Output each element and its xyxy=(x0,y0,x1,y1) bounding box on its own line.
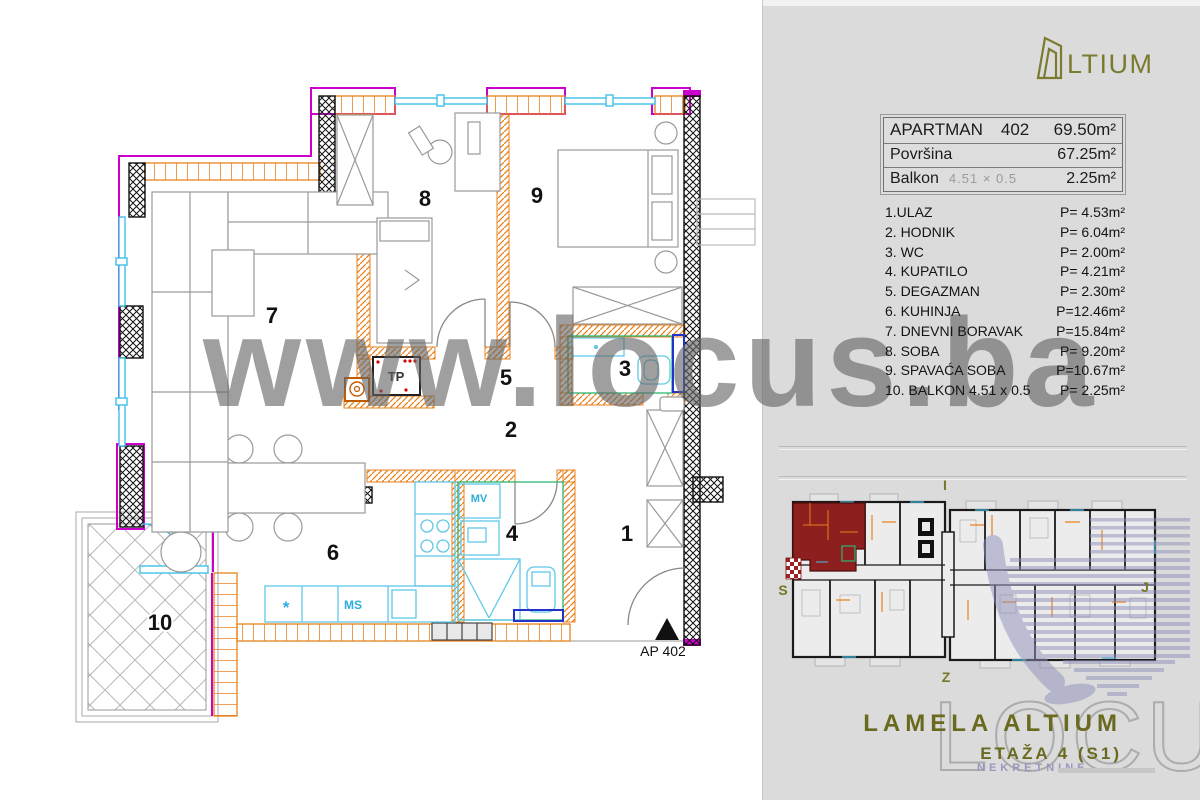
room-label-1: 1 xyxy=(621,521,633,546)
room-list-item: 8. SOBAP= 9.20m² xyxy=(885,342,1125,362)
footer-bar xyxy=(1058,768,1155,773)
room-list-item: 2. HODNIKP= 6.04m² xyxy=(885,223,1125,243)
room-list-item: 1.ULAZP= 4.53m² xyxy=(885,203,1125,223)
mini-highlighted-unit xyxy=(786,503,865,579)
etaza-subtitle: ETAŽA 4 (S1) xyxy=(980,744,1122,764)
compass-left: S xyxy=(778,582,787,598)
apartment-entry-marker: AP 402 xyxy=(640,618,686,659)
room-list-item: 6. KUHINJAP=12.46m² xyxy=(885,302,1125,322)
room-label-2: 2 xyxy=(505,417,517,442)
technical-boxes xyxy=(345,357,420,401)
apartment-total-area: 69.50m² xyxy=(1054,120,1116,140)
balkon-dimensions: 4.51 × 0.5 xyxy=(949,171,1017,186)
room-list-item: 9. SPAVAĆA SOBAP=10.67m² xyxy=(885,361,1125,381)
room-label-6: 6 xyxy=(327,540,339,565)
mini-balcony-checker xyxy=(786,558,801,579)
mv-label: MV xyxy=(471,493,488,505)
apartment-label: APARTMAN xyxy=(890,120,983,140)
povrsina-label: Površina xyxy=(890,146,952,164)
room-list-item: 5. DEGAZMANP= 2.30m² xyxy=(885,282,1125,302)
info-row-povrsina: Površina 67.25m² xyxy=(884,144,1122,168)
info-panel: LTIUM APARTMAN 402 69.50m² Površina 67.2… xyxy=(762,0,1200,800)
ms-label: MS xyxy=(344,598,362,612)
info-row-apartment: APARTMAN 402 69.50m² xyxy=(884,118,1122,144)
tp-label: TP xyxy=(388,369,405,384)
room-list-item: 3. WCP= 2.00m² xyxy=(885,243,1125,263)
room-list-item: 4. KUPATILOP= 4.21m² xyxy=(885,262,1125,282)
apartment-info-table: APARTMAN 402 69.50m² Površina 67.25m² Ba… xyxy=(880,114,1126,195)
lamela-title: LAMELA ALTIUM xyxy=(863,710,1122,738)
compass-top: I xyxy=(943,477,947,493)
altium-door-icon xyxy=(1038,38,1061,78)
room-label-8: 8 xyxy=(419,186,431,211)
star-label: * xyxy=(283,598,290,617)
room-list: 1.ULAZP= 4.53m² 2. HODNIKP= 6.04m² 3. WC… xyxy=(885,203,1125,401)
altium-logo: LTIUM xyxy=(1035,32,1175,82)
room-label-9: 9 xyxy=(531,183,543,208)
info-row-balkon: Balkon 4.51 × 0.5 2.25m² xyxy=(884,168,1122,191)
balkon-value: 2.25m² xyxy=(1066,170,1116,188)
room-label-5: 5 xyxy=(500,365,512,390)
compass-right: J xyxy=(1141,579,1149,595)
altium-wordmark: LTIUM xyxy=(1067,49,1154,79)
locus-outline-wordmark: LOCUS xyxy=(925,678,1200,800)
apartment-number: 402 xyxy=(1001,120,1029,140)
room-list-item: 10. BALKON 4.51 x 0.5P= 2.25m² xyxy=(885,381,1125,401)
apartment-floor-plan: 1 2 3 4 5 6 7 8 9 10 TP MV MS * AP 402 xyxy=(0,0,762,800)
balkon-label: Balkon xyxy=(890,170,939,188)
povrsina-value: 67.25m² xyxy=(1057,146,1116,164)
ap-number-label: AP 402 xyxy=(640,643,686,659)
room-label-10: 10 xyxy=(148,610,172,635)
room-label-3: 3 xyxy=(619,356,631,381)
floorplan-brochure: 1 2 3 4 5 6 7 8 9 10 TP MV MS * AP 402 w… xyxy=(0,0,1200,800)
room-label-4: 4 xyxy=(506,521,519,546)
room-list-item: 7. DNEVNI BORAVAKP=15.84m² xyxy=(885,322,1125,342)
room-label-7: 7 xyxy=(266,303,278,328)
